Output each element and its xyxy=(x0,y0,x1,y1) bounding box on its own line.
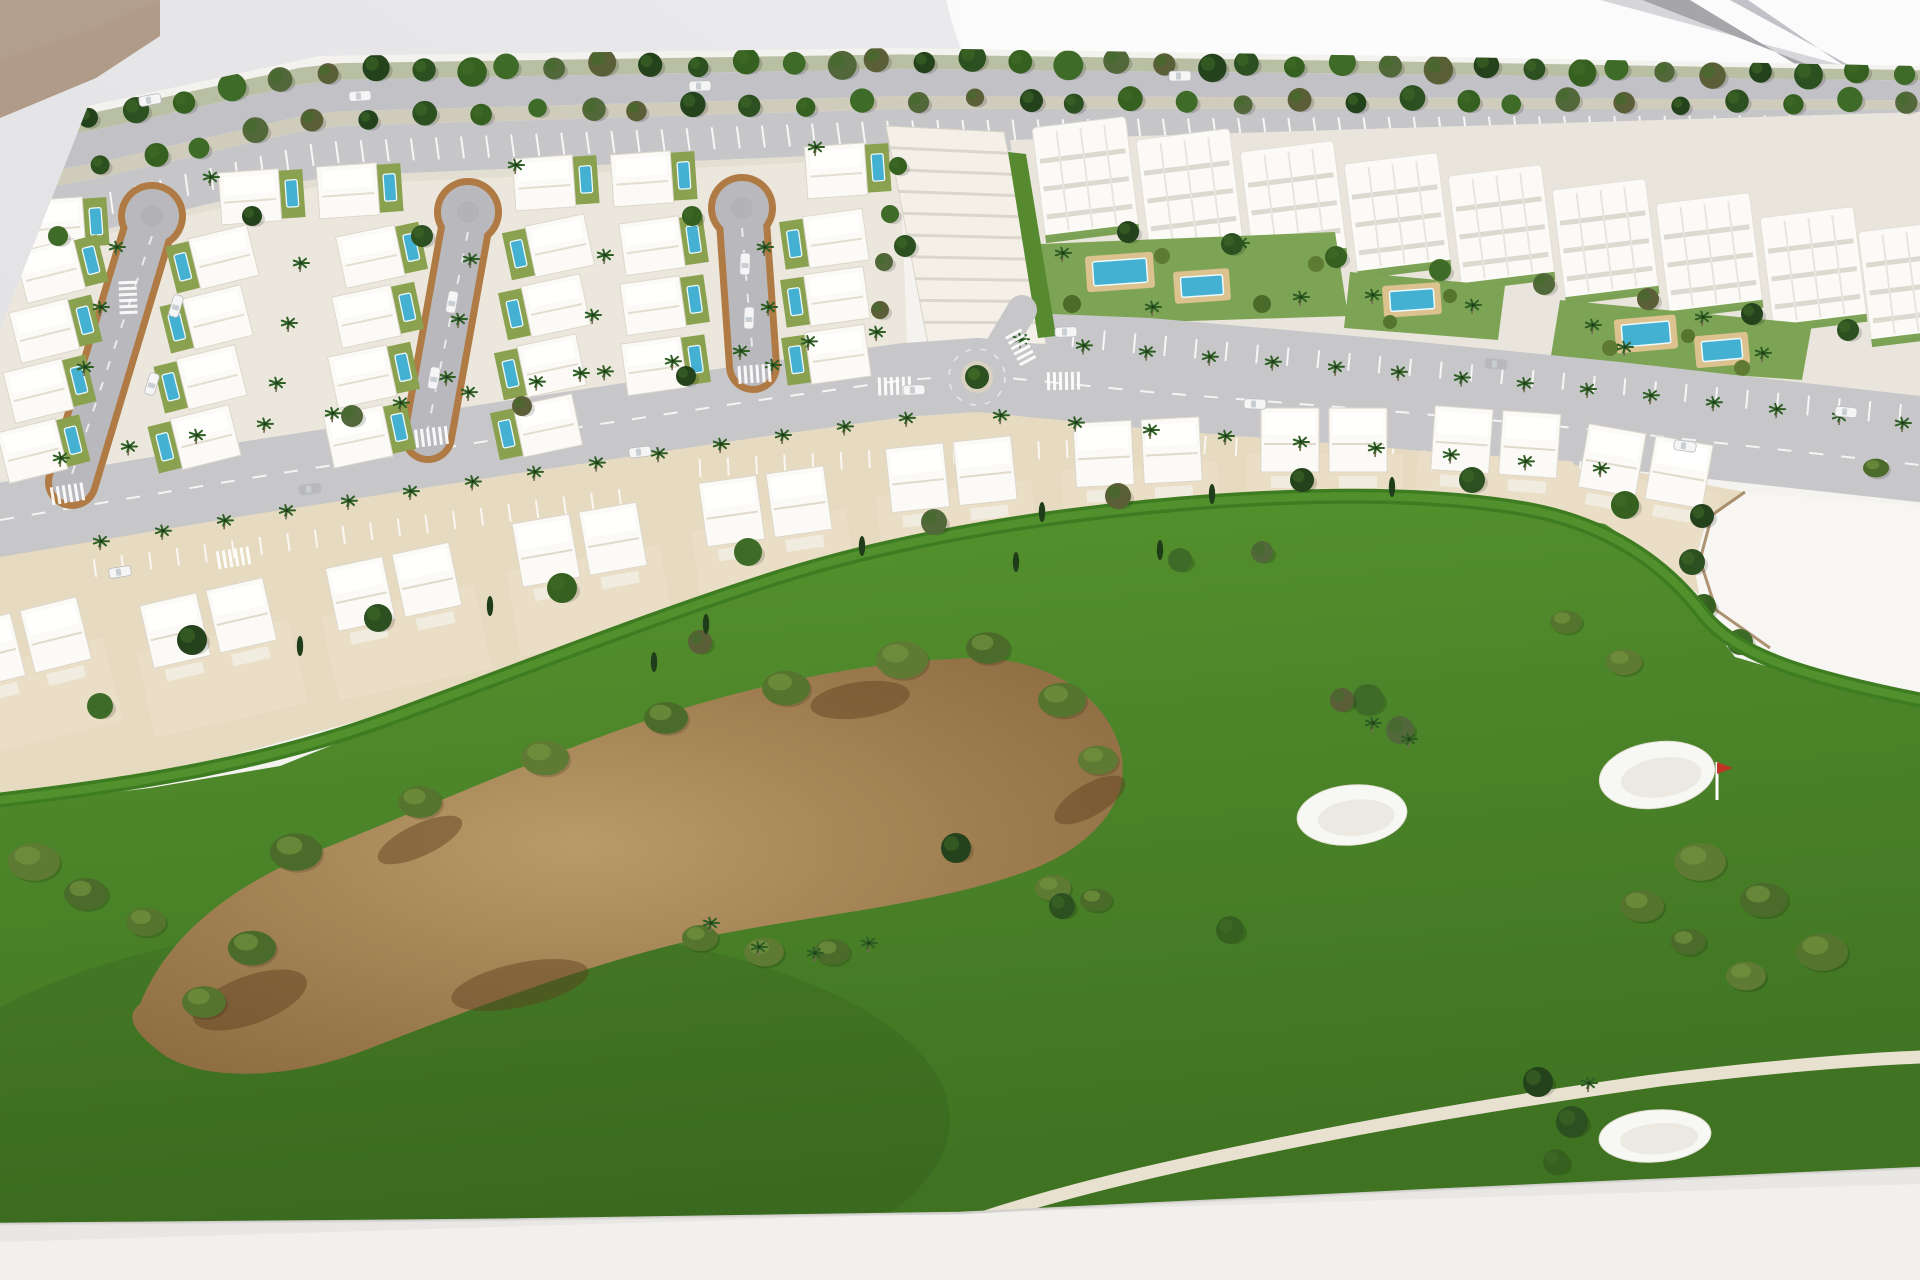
tree-highlight xyxy=(545,60,556,71)
palm-crown xyxy=(1775,408,1778,411)
car-windshield xyxy=(1842,408,1848,415)
townhouse-terrace xyxy=(1339,476,1377,488)
car-windshield xyxy=(696,82,701,89)
tree-highlight xyxy=(628,103,638,113)
bush-highlight xyxy=(70,881,92,896)
bush-highlight xyxy=(1083,748,1103,762)
palm-crown xyxy=(331,412,334,415)
garden-bush xyxy=(1383,315,1397,329)
car xyxy=(1485,358,1507,369)
zebra-stripe xyxy=(119,299,137,303)
communal-pool xyxy=(1389,288,1434,311)
villa-pool xyxy=(285,180,299,208)
roundabout-bush-highlight xyxy=(968,368,980,380)
car-windshield xyxy=(741,263,748,268)
palm-crown xyxy=(1061,251,1064,254)
cypress-tree xyxy=(297,636,303,656)
car xyxy=(349,90,371,101)
palm-crown xyxy=(399,401,402,404)
tree-highlight xyxy=(1639,290,1650,301)
tree-highlight xyxy=(1571,62,1585,76)
tree-highlight xyxy=(191,140,201,150)
parking-line xyxy=(869,450,870,468)
tree-highlight xyxy=(365,57,379,71)
parking-line xyxy=(1038,441,1039,459)
palm-crown xyxy=(1224,434,1227,437)
palm-crown xyxy=(1523,382,1526,385)
tree-highlight xyxy=(1702,65,1715,78)
villa-pool xyxy=(579,166,593,194)
tree-highlight xyxy=(740,97,751,108)
tree-highlight xyxy=(1236,54,1248,66)
tree-highlight xyxy=(514,398,524,408)
tree-highlight xyxy=(1897,94,1908,105)
bush-highlight xyxy=(819,941,837,954)
bush-highlight xyxy=(1803,936,1829,954)
tree-highlight xyxy=(585,100,597,112)
palm-crown xyxy=(1712,401,1715,404)
tree-highlight xyxy=(831,54,845,68)
tree-highlight xyxy=(1535,275,1546,286)
tree-highlight xyxy=(1170,550,1182,562)
tree-highlight xyxy=(968,90,977,99)
tree-highlight xyxy=(1348,95,1358,105)
palm-crown xyxy=(299,261,302,264)
villa xyxy=(610,149,697,207)
palm-crown xyxy=(467,390,470,393)
villa-pool xyxy=(871,154,885,182)
palm-crown xyxy=(1761,351,1764,354)
cypress-tree xyxy=(1039,502,1045,522)
palm-crown xyxy=(1208,355,1211,358)
tree-highlight xyxy=(343,407,354,418)
garden-bush xyxy=(1063,295,1081,313)
tree-highlight xyxy=(180,628,195,643)
palm-crown xyxy=(595,461,598,464)
bush-highlight xyxy=(188,989,210,1004)
palm-crown xyxy=(1623,345,1626,348)
villa xyxy=(512,153,599,211)
palm-crown xyxy=(843,425,846,428)
tree-highlight xyxy=(415,61,427,73)
palm-crown xyxy=(59,456,62,459)
bush-highlight xyxy=(131,910,151,924)
tree-highlight xyxy=(1022,91,1034,103)
car-windshield xyxy=(1681,442,1687,450)
palm-crown xyxy=(99,305,102,308)
palm-crown xyxy=(671,360,674,363)
car-windshield xyxy=(306,485,312,493)
palm-crown xyxy=(867,941,870,944)
tree-highlight xyxy=(90,696,103,709)
tree-highlight xyxy=(1223,235,1234,246)
palm-crown xyxy=(1397,370,1400,373)
villa xyxy=(804,141,891,199)
zebra-stripe xyxy=(120,311,138,315)
car-windshield xyxy=(1492,360,1497,367)
tree-highlight xyxy=(1011,52,1023,64)
palm-crown xyxy=(999,414,1002,417)
cypress-tree xyxy=(1013,552,1019,572)
zebra-stripe xyxy=(119,287,137,291)
tree-highlight xyxy=(683,94,696,107)
tree-highlight xyxy=(1120,89,1133,102)
palm-crown xyxy=(223,519,226,522)
tree-highlight xyxy=(1462,470,1475,483)
cypress-tree xyxy=(703,614,709,634)
palm-crown xyxy=(709,921,712,924)
palm-crown xyxy=(1599,467,1602,470)
palm-crown xyxy=(457,317,460,320)
palm-crown xyxy=(813,951,816,954)
apartment-block xyxy=(1448,165,1555,292)
palm-crown xyxy=(1145,350,1148,353)
tree-highlight xyxy=(360,112,370,122)
tree-highlight xyxy=(1290,90,1302,102)
apartment-block xyxy=(1760,207,1867,334)
townhouse-roof xyxy=(1265,413,1315,435)
bush-highlight xyxy=(1681,846,1707,864)
tree-highlight xyxy=(1106,50,1119,63)
palm-crown xyxy=(533,470,536,473)
tree-highlight xyxy=(1052,896,1065,909)
tree-highlight xyxy=(550,576,565,591)
tree-highlight xyxy=(896,237,907,248)
tree-highlight xyxy=(413,227,424,238)
tree-highlight xyxy=(1292,470,1304,482)
tree-highlight xyxy=(147,145,159,157)
villa-roof-upper xyxy=(224,174,275,195)
tree-highlight xyxy=(883,207,892,216)
townhouse-roof xyxy=(1505,416,1556,441)
palm-crown xyxy=(603,253,606,256)
palm-crown xyxy=(445,375,448,378)
garden-bush xyxy=(1253,295,1271,313)
tree-highlight xyxy=(591,51,605,65)
bush-highlight xyxy=(1731,964,1751,978)
bush-highlight xyxy=(277,836,303,854)
tree-highlight xyxy=(472,106,483,117)
tree-highlight xyxy=(1656,64,1666,74)
bush-highlight xyxy=(1675,931,1693,944)
tree-highlight xyxy=(1728,92,1740,104)
car xyxy=(628,446,651,459)
tree-highlight xyxy=(245,120,258,133)
garden-bush xyxy=(1602,340,1618,356)
tree-highlight xyxy=(221,76,235,90)
palm-crown xyxy=(591,313,594,316)
car xyxy=(689,81,711,92)
car xyxy=(1169,71,1191,81)
palm-crown xyxy=(287,321,290,324)
tree-highlight xyxy=(1614,494,1628,508)
palm-crown xyxy=(161,529,164,532)
car xyxy=(1835,406,1858,418)
zebra-stripe xyxy=(119,305,137,309)
villa-pool xyxy=(383,174,397,202)
bush-highlight xyxy=(15,846,41,864)
tree-highlight xyxy=(1682,552,1695,565)
tree-highlight xyxy=(640,55,652,67)
zebra-stripe xyxy=(1053,372,1056,390)
bulb-center xyxy=(457,201,479,223)
tree-highlight xyxy=(367,607,381,621)
bush-highlight xyxy=(687,927,705,940)
palm-crown xyxy=(1901,421,1904,424)
tree-highlight xyxy=(415,103,427,115)
palm-crown xyxy=(1082,344,1085,347)
villa-pool xyxy=(89,208,103,236)
tree-highlight xyxy=(1427,58,1442,73)
tree-highlight xyxy=(852,91,864,103)
palm-crown xyxy=(1334,365,1337,368)
palm-crown xyxy=(127,445,130,448)
zebra-stripe xyxy=(896,377,900,395)
tree-highlight xyxy=(916,54,927,65)
zebra-stripe xyxy=(890,377,894,395)
tree-highlight xyxy=(1381,57,1393,69)
palm-crown xyxy=(814,145,817,148)
zebra-stripe xyxy=(118,281,136,285)
palm-crown xyxy=(1449,453,1452,456)
palm-crown xyxy=(409,490,412,493)
palm-crown xyxy=(771,363,774,366)
tree-highlight xyxy=(303,111,314,122)
villa-roof-upper xyxy=(616,156,667,177)
palm-crown xyxy=(1371,293,1374,296)
communal-garden-1 xyxy=(1032,232,1348,326)
palm-crown xyxy=(263,422,266,425)
apartment-block xyxy=(1552,179,1659,306)
palm-crown xyxy=(1524,460,1527,463)
bush-highlight xyxy=(768,674,792,691)
palm-crown xyxy=(1374,446,1377,449)
townhouse-roof xyxy=(1333,413,1383,435)
car xyxy=(903,385,925,396)
palm-crown xyxy=(719,442,722,445)
palm-crown xyxy=(1407,737,1410,740)
tree-highlight xyxy=(50,228,60,238)
townhouse-roof xyxy=(1077,426,1128,451)
tree-highlight xyxy=(1236,97,1245,106)
palm-crown xyxy=(285,509,288,512)
tree-highlight xyxy=(678,368,688,378)
tree-highlight xyxy=(1743,305,1754,316)
tree-highlight xyxy=(1797,64,1811,78)
tree-highlight xyxy=(1219,919,1233,933)
bush-highlight xyxy=(1626,893,1648,908)
tree-highlight xyxy=(1402,88,1415,101)
bulb-center xyxy=(141,205,163,227)
tree-highlight xyxy=(1108,486,1121,499)
tree-highlight xyxy=(1526,1070,1541,1085)
tree-highlight xyxy=(1355,687,1371,703)
car xyxy=(1244,399,1266,410)
cypress-tree xyxy=(859,536,865,556)
villa-pool xyxy=(677,162,691,190)
tree-highlight xyxy=(961,47,975,61)
bush-highlight xyxy=(1611,651,1629,664)
palm-crown xyxy=(1271,360,1274,363)
car-windshield xyxy=(356,92,361,99)
tree-highlight xyxy=(1389,719,1403,733)
communal-pool xyxy=(1092,258,1148,286)
scene-svg xyxy=(0,0,1920,1280)
tree-highlight xyxy=(1460,92,1471,103)
parking-line xyxy=(728,458,729,476)
cypress-tree xyxy=(1157,540,1163,560)
tree-highlight xyxy=(1607,59,1619,71)
tree-highlight xyxy=(1253,543,1264,554)
bush-highlight xyxy=(404,789,426,804)
palm-crown xyxy=(209,175,212,178)
tree-highlight xyxy=(1286,59,1296,69)
palm-crown xyxy=(1074,421,1077,424)
tree-highlight xyxy=(684,208,694,218)
zebra-stripe xyxy=(1071,372,1074,390)
palm-crown xyxy=(1371,721,1374,724)
palm-crown xyxy=(115,245,118,248)
tree-highlight xyxy=(1431,261,1442,272)
palm-crown xyxy=(99,540,102,543)
tree-highlight xyxy=(496,56,509,69)
tree-highlight xyxy=(910,94,921,105)
bulb-center xyxy=(731,197,753,219)
zebra-stripe xyxy=(1077,372,1080,390)
garden-bush xyxy=(1308,256,1324,272)
townhouse-roof xyxy=(1437,411,1488,436)
palm-crown xyxy=(469,257,472,260)
tree-highlight xyxy=(1119,223,1130,234)
palm-crown xyxy=(471,480,474,483)
bush-highlight xyxy=(1746,886,1770,903)
palm-crown xyxy=(1586,387,1589,390)
palm-crown xyxy=(875,330,878,333)
bush-highlight xyxy=(527,744,551,761)
tree-highlight xyxy=(175,94,186,105)
palm-crown xyxy=(579,371,582,374)
tree-highlight xyxy=(320,65,330,75)
palm-crown xyxy=(1471,303,1474,306)
palm-crown xyxy=(1591,323,1594,326)
palm-crown xyxy=(603,370,606,373)
bush-highlight xyxy=(972,635,994,650)
palm-crown xyxy=(1149,428,1152,431)
palm-crown xyxy=(535,380,538,383)
tree-highlight xyxy=(877,255,886,264)
tree-highlight xyxy=(1155,56,1166,67)
tree-highlight xyxy=(1178,93,1189,104)
bush-highlight xyxy=(1040,877,1058,890)
palm-crown xyxy=(763,245,766,248)
tree-highlight xyxy=(737,541,751,555)
villa-roof-upper xyxy=(518,160,569,181)
palm-crown xyxy=(657,452,660,455)
tree-highlight xyxy=(1559,1109,1575,1125)
cypress-tree xyxy=(1389,477,1395,497)
tree-highlight xyxy=(1673,98,1682,107)
tree-highlight xyxy=(1332,690,1344,702)
tree-highlight xyxy=(1751,62,1762,73)
bush-highlight xyxy=(883,644,909,662)
zebra-stripe xyxy=(878,377,882,395)
tree-highlight xyxy=(1056,53,1071,68)
palm-crown xyxy=(1460,376,1463,379)
zebra-stripe xyxy=(1047,372,1050,390)
palm-crown xyxy=(83,365,86,368)
communal-pool xyxy=(1701,338,1743,361)
villa-roof-upper xyxy=(810,148,861,169)
palm-crown xyxy=(739,349,742,352)
terrace-step-line xyxy=(915,279,1033,281)
tree-highlight xyxy=(924,512,937,525)
zebra-stripe xyxy=(119,293,137,297)
bush-highlight xyxy=(1554,612,1570,623)
palm-crown xyxy=(807,340,810,343)
townhouse-roof xyxy=(1145,422,1196,447)
palm-crown xyxy=(1299,440,1302,443)
car-windshield xyxy=(910,386,915,393)
tree-highlight xyxy=(1201,57,1215,71)
tree-highlight xyxy=(690,59,700,69)
car-windshield xyxy=(1176,72,1181,79)
parking-line xyxy=(1236,438,1237,456)
car xyxy=(1055,327,1077,338)
parking-line xyxy=(841,452,842,470)
parking-line xyxy=(1204,436,1205,454)
tree-highlight xyxy=(270,70,282,82)
palm-crown xyxy=(347,499,350,502)
tree-highlight xyxy=(1896,66,1907,77)
bush-highlight xyxy=(650,705,672,720)
tree-highlight xyxy=(1503,96,1513,106)
tree-highlight xyxy=(1616,94,1627,105)
zebra-stripe xyxy=(1059,372,1062,390)
palm-crown xyxy=(1587,1081,1590,1084)
cypress-tree xyxy=(651,652,657,672)
tree-highlight xyxy=(736,50,749,63)
bush-highlight xyxy=(1084,890,1100,901)
palm-crown xyxy=(767,305,770,308)
tree-highlight xyxy=(944,836,959,851)
model-content xyxy=(0,44,1920,1280)
car-windshield xyxy=(636,448,642,456)
bush-highlight xyxy=(1044,686,1068,703)
cypress-tree xyxy=(1209,484,1215,504)
tree-highlight xyxy=(93,157,102,166)
palm-crown xyxy=(1701,315,1704,318)
car-windshield xyxy=(745,317,752,322)
bush-highlight xyxy=(234,934,258,951)
tree-highlight xyxy=(1692,506,1704,518)
tree-highlight xyxy=(1558,90,1570,102)
tree-highlight xyxy=(873,303,882,312)
garden-bush xyxy=(1443,289,1457,303)
tree-highlight xyxy=(460,60,475,75)
parking-line xyxy=(1067,440,1068,458)
zebra-stripe xyxy=(884,377,888,395)
car xyxy=(740,253,751,275)
tree-highlight xyxy=(1526,60,1537,71)
palm-crown xyxy=(275,381,278,384)
car xyxy=(744,307,755,329)
tree-highlight xyxy=(244,208,254,218)
palm-crown xyxy=(514,163,517,166)
car-windshield xyxy=(1062,328,1067,335)
tree-highlight xyxy=(126,100,139,113)
palm-crown xyxy=(1649,394,1652,397)
tree-highlight xyxy=(1327,248,1338,259)
